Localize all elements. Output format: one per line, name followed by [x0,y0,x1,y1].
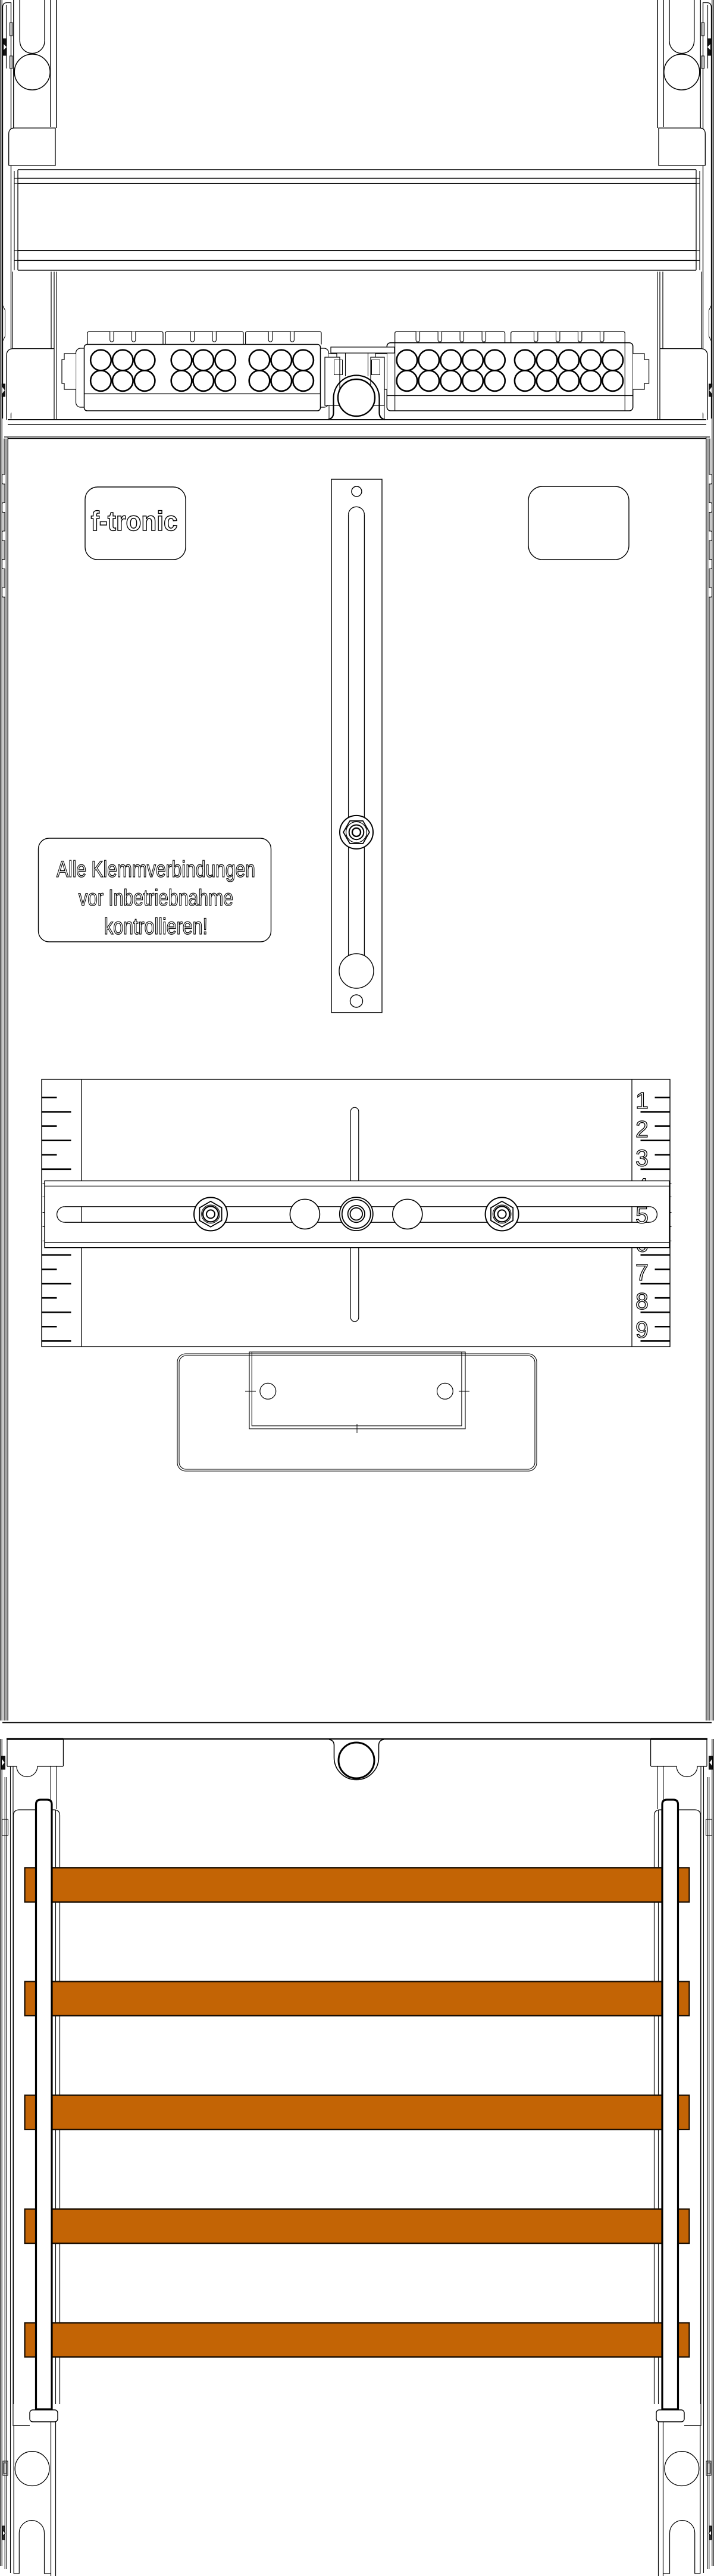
svg-text:9: 9 [635,1317,649,1343]
svg-text:kontrollieren!: kontrollieren! [104,914,208,939]
svg-text:5: 5 [635,1203,649,1229]
svg-text:2: 2 [635,1117,649,1142]
svg-text:f-tronic: f-tronic [91,505,178,536]
svg-text:8: 8 [635,1289,649,1314]
svg-text:7: 7 [635,1260,649,1286]
svg-text:3: 3 [635,1145,649,1171]
svg-text:1: 1 [635,1088,649,1114]
svg-text:vor Inbetriebnahme: vor Inbetriebnahme [79,885,233,911]
svg-text:Alle Klemmverbindungen: Alle Klemmverbindungen [57,857,255,882]
